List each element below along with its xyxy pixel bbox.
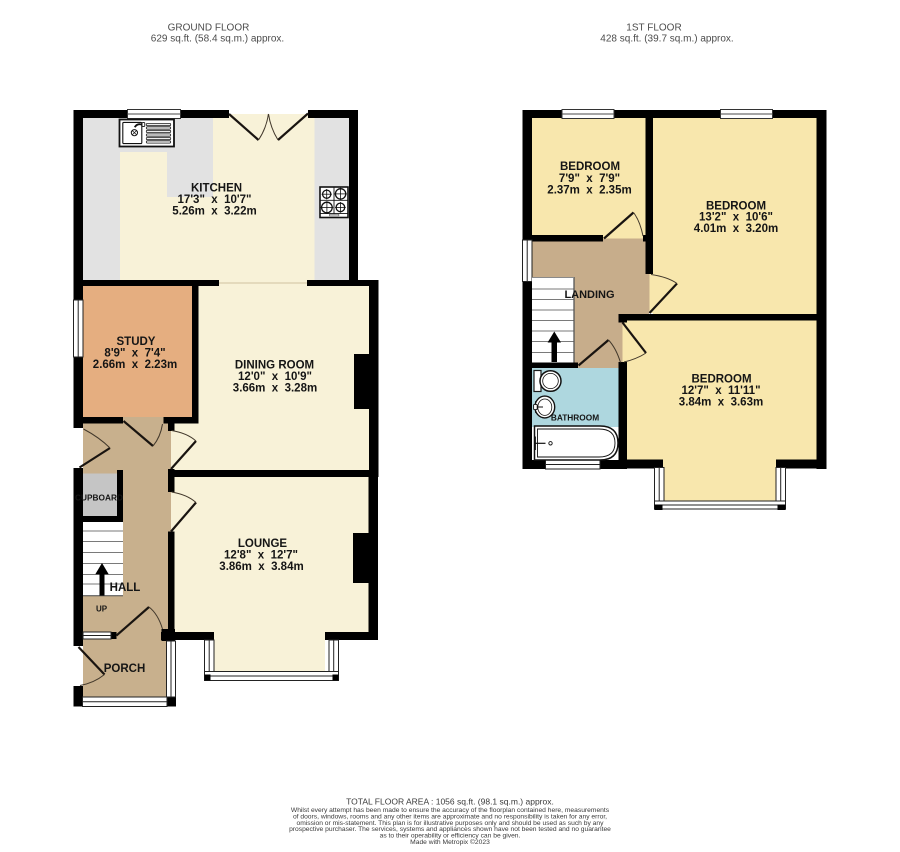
svg-text:KITCHEN: KITCHEN [191, 183, 242, 195]
svg-text:1ST FLOOR: 1ST FLOOR [626, 23, 681, 34]
svg-text:3.66m x 3.28m: 3.66m x 3.28m [233, 383, 317, 395]
svg-text:TOTAL FLOOR AREA : 1056 sq.ft.: TOTAL FLOOR AREA : 1056 sq.ft. (98.1 sq.… [346, 797, 554, 807]
svg-text:3.84m x 3.63m: 3.84m x 3.63m [679, 397, 763, 409]
svg-text:3.86m x 3.84m: 3.86m x 3.84m [219, 561, 303, 573]
svg-text:HALL: HALL [110, 582, 141, 594]
svg-text:4.01m x 3.20m: 4.01m x 3.20m [694, 223, 778, 235]
svg-text:629 sq.ft. (58.4 sq.m.) approx: 629 sq.ft. (58.4 sq.m.) approx. [151, 34, 284, 45]
svg-text:12'7" x 11'11": 12'7" x 11'11" [681, 385, 760, 397]
svg-text:CUPBOARD: CUPBOARD [75, 493, 123, 503]
svg-text:13'2" x 10'6": 13'2" x 10'6" [699, 212, 773, 224]
svg-text:GROUND FLOOR: GROUND FLOOR [168, 23, 250, 34]
svg-text:BEDROOM: BEDROOM [560, 161, 620, 173]
svg-text:DINING ROOM: DINING ROOM [235, 360, 314, 372]
svg-text:2.66m x 2.23m: 2.66m x 2.23m [93, 359, 177, 371]
svg-text:PORCH: PORCH [104, 663, 146, 675]
svg-text:5.26m x 3.22m: 5.26m x 3.22m [172, 206, 256, 218]
svg-text:BATHROOM: BATHROOM [551, 413, 599, 423]
svg-text:428 sq.ft. (39.7 sq.m.) approx: 428 sq.ft. (39.7 sq.m.) approx. [600, 34, 733, 45]
svg-text:STUDY: STUDY [117, 336, 156, 348]
svg-text:12'8" x 12'7": 12'8" x 12'7" [224, 550, 298, 562]
svg-text:BEDROOM: BEDROOM [691, 374, 751, 386]
svg-text:LANDING: LANDING [564, 289, 614, 301]
svg-text:LOUNGE: LOUNGE [238, 538, 288, 550]
svg-text:7'9" x 7'9": 7'9" x 7'9" [559, 173, 620, 185]
svg-text:UP: UP [96, 605, 108, 614]
svg-text:12'0" x 10'9": 12'0" x 10'9" [238, 371, 312, 383]
svg-text:17'3" x 10'7": 17'3" x 10'7" [178, 194, 252, 206]
svg-text:8'9" x 7'4": 8'9" x 7'4" [104, 348, 165, 360]
svg-text:2.37m x 2.35m: 2.37m x 2.35m [547, 185, 631, 197]
svg-text:Made with Metropix ©2023: Made with Metropix ©2023 [410, 838, 490, 846]
